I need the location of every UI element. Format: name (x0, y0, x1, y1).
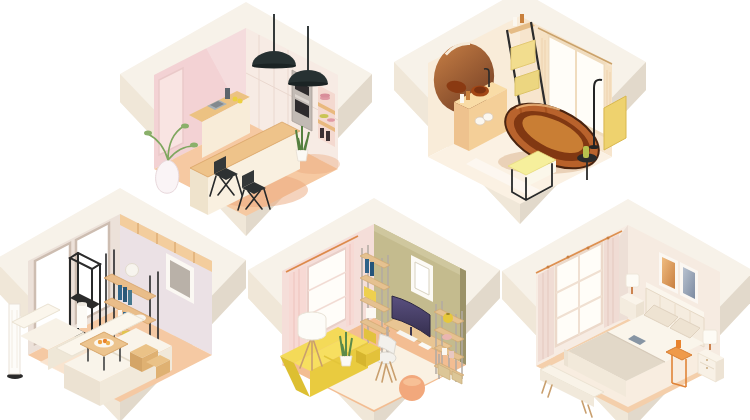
living-room-scene (0, 186, 260, 420)
open-shelf-niche-with-plates (318, 85, 335, 147)
home-office-scene (234, 196, 514, 420)
room-bedroom (488, 197, 750, 420)
room-living (0, 186, 260, 420)
bedroom-scene (488, 197, 750, 420)
peach-pouf (399, 375, 425, 401)
isometric-rooms-illustration (0, 0, 750, 420)
room-office (234, 196, 514, 420)
